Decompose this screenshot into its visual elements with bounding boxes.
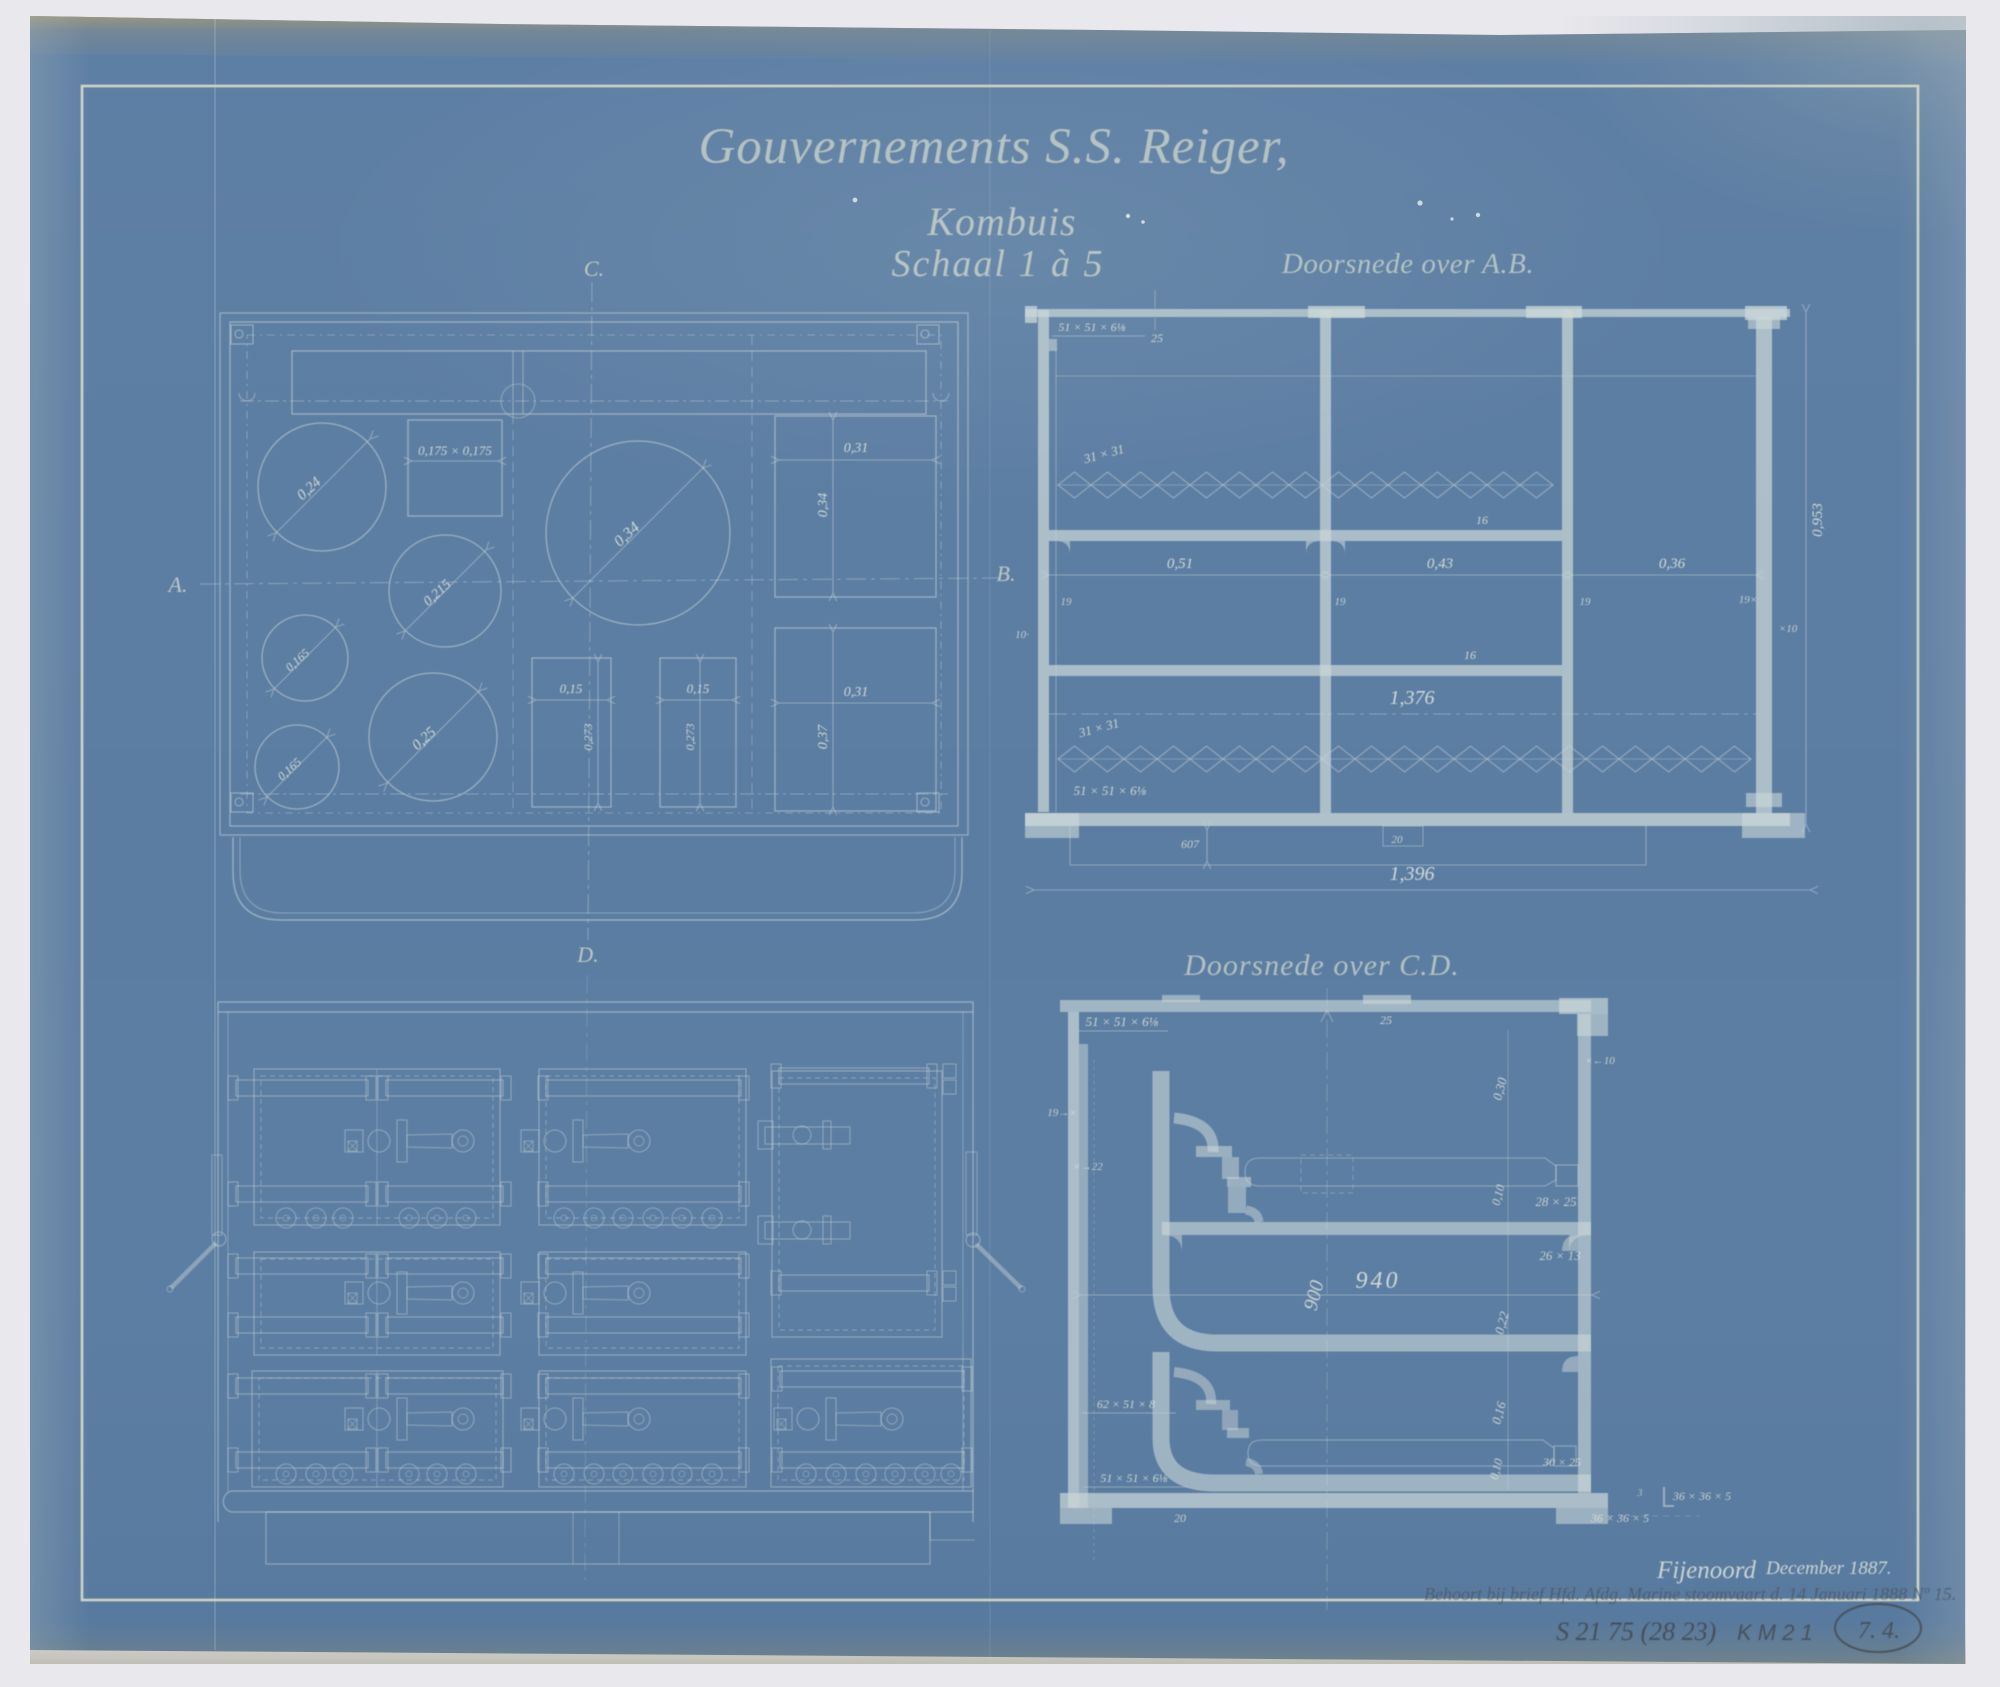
svg-text:3: 3 xyxy=(1637,1488,1643,1499)
svg-text:16: 16 xyxy=(1476,513,1488,527)
svg-text:Ѕ 21 75 (28 23): Ѕ 21 75 (28 23) xyxy=(1556,1617,1716,1646)
svg-text:K M 2 1: K M 2 1 xyxy=(1737,1620,1813,1645)
svg-text:Kombuis: Kombuis xyxy=(926,199,1076,244)
svg-text:0,273: 0,273 xyxy=(581,724,595,751)
svg-text:0,34: 0,34 xyxy=(816,493,831,518)
svg-text:0,273: 0,273 xyxy=(683,724,697,751)
svg-text:Gouvernements S.S. Reiger,: Gouvernements S.S. Reiger, xyxy=(698,119,1289,175)
svg-text:0,953: 0,953 xyxy=(1810,503,1826,537)
svg-text:Fijenoord: Fijenoord xyxy=(1656,1557,1757,1584)
svg-text:940: 940 xyxy=(1356,1268,1401,1294)
svg-text:Behoort bij brief Hfd. Afdg. M: Behoort bij brief Hfd. Afdg. Marine stoo… xyxy=(1424,1584,1956,1604)
svg-text:26 × 13: 26 × 13 xyxy=(1539,1248,1581,1263)
svg-text:36 × 36 × 5: 36 × 36 × 5 xyxy=(1672,1489,1731,1503)
svg-text:607: 607 xyxy=(1181,837,1200,851)
svg-text:Doorsnede over C.D.: Doorsnede over C.D. xyxy=(1183,949,1460,982)
svg-text:0,175 × 0,175: 0,175 × 0,175 xyxy=(418,443,492,458)
svg-text:0,31: 0,31 xyxy=(844,685,869,700)
svg-text:0,15: 0,15 xyxy=(687,681,710,696)
svg-text:×←10: ×←10 xyxy=(1585,1055,1615,1067)
svg-text:D.: D. xyxy=(576,942,598,967)
svg-text:0,37: 0,37 xyxy=(816,724,831,750)
svg-text:20: 20 xyxy=(1174,1511,1186,1525)
svg-text:62 × 51 × 8: 62 × 51 × 8 xyxy=(1097,1397,1155,1411)
svg-text:C.: C. xyxy=(584,256,604,281)
svg-text:10·: 10· xyxy=(1015,629,1029,641)
svg-text:Doorsnede over A.B.: Doorsnede over A.B. xyxy=(1281,248,1534,280)
svg-text:0,51: 0,51 xyxy=(1167,556,1193,572)
svg-text:0,15: 0,15 xyxy=(560,681,583,696)
svg-text:20: 20 xyxy=(1392,834,1404,846)
svg-text:19→×: 19→× xyxy=(1047,1107,1076,1119)
svg-text:28 × 25: 28 × 25 xyxy=(1535,1194,1577,1209)
svg-text:Schaal 1 à 5: Schaal 1 à 5 xyxy=(892,243,1105,285)
svg-text:×→22: ×→22 xyxy=(1073,1161,1103,1173)
svg-text:B.: B. xyxy=(997,561,1016,586)
svg-text:1,396: 1,396 xyxy=(1390,863,1435,885)
svg-text:7. 4.: 7. 4. xyxy=(1858,1618,1900,1644)
svg-text:30 × 25: 30 × 25 xyxy=(1542,1455,1581,1469)
svg-text:A.: A. xyxy=(167,572,188,597)
svg-text:19×: 19× xyxy=(1739,594,1757,606)
svg-text:×10: ×10 xyxy=(1779,623,1798,635)
svg-text:19: 19 xyxy=(1061,596,1073,608)
svg-text:0,31: 0,31 xyxy=(844,441,869,456)
svg-text:25: 25 xyxy=(1151,331,1163,345)
svg-text:0,43: 0,43 xyxy=(1427,556,1453,572)
svg-text:51 × 51 × 6⅛: 51 × 51 × 6⅛ xyxy=(1058,320,1125,334)
svg-text:19: 19 xyxy=(1335,596,1347,608)
svg-text:36 × 36 × 5: 36 × 36 × 5 xyxy=(1590,1511,1649,1525)
svg-text:51 × 51 × 6⅛: 51 × 51 × 6⅛ xyxy=(1074,783,1147,798)
svg-text:16: 16 xyxy=(1464,648,1476,662)
svg-text:51 × 51 × 6⅛: 51 × 51 × 6⅛ xyxy=(1086,1014,1159,1029)
svg-text:0,36: 0,36 xyxy=(1659,556,1686,572)
svg-text:25: 25 xyxy=(1380,1013,1392,1027)
svg-text:19: 19 xyxy=(1580,596,1592,608)
svg-text:51 × 51 × 6⅛: 51 × 51 × 6⅛ xyxy=(1100,1471,1167,1485)
svg-text:1,376: 1,376 xyxy=(1390,687,1435,709)
svg-text:December 1887.: December 1887. xyxy=(1765,1558,1892,1579)
